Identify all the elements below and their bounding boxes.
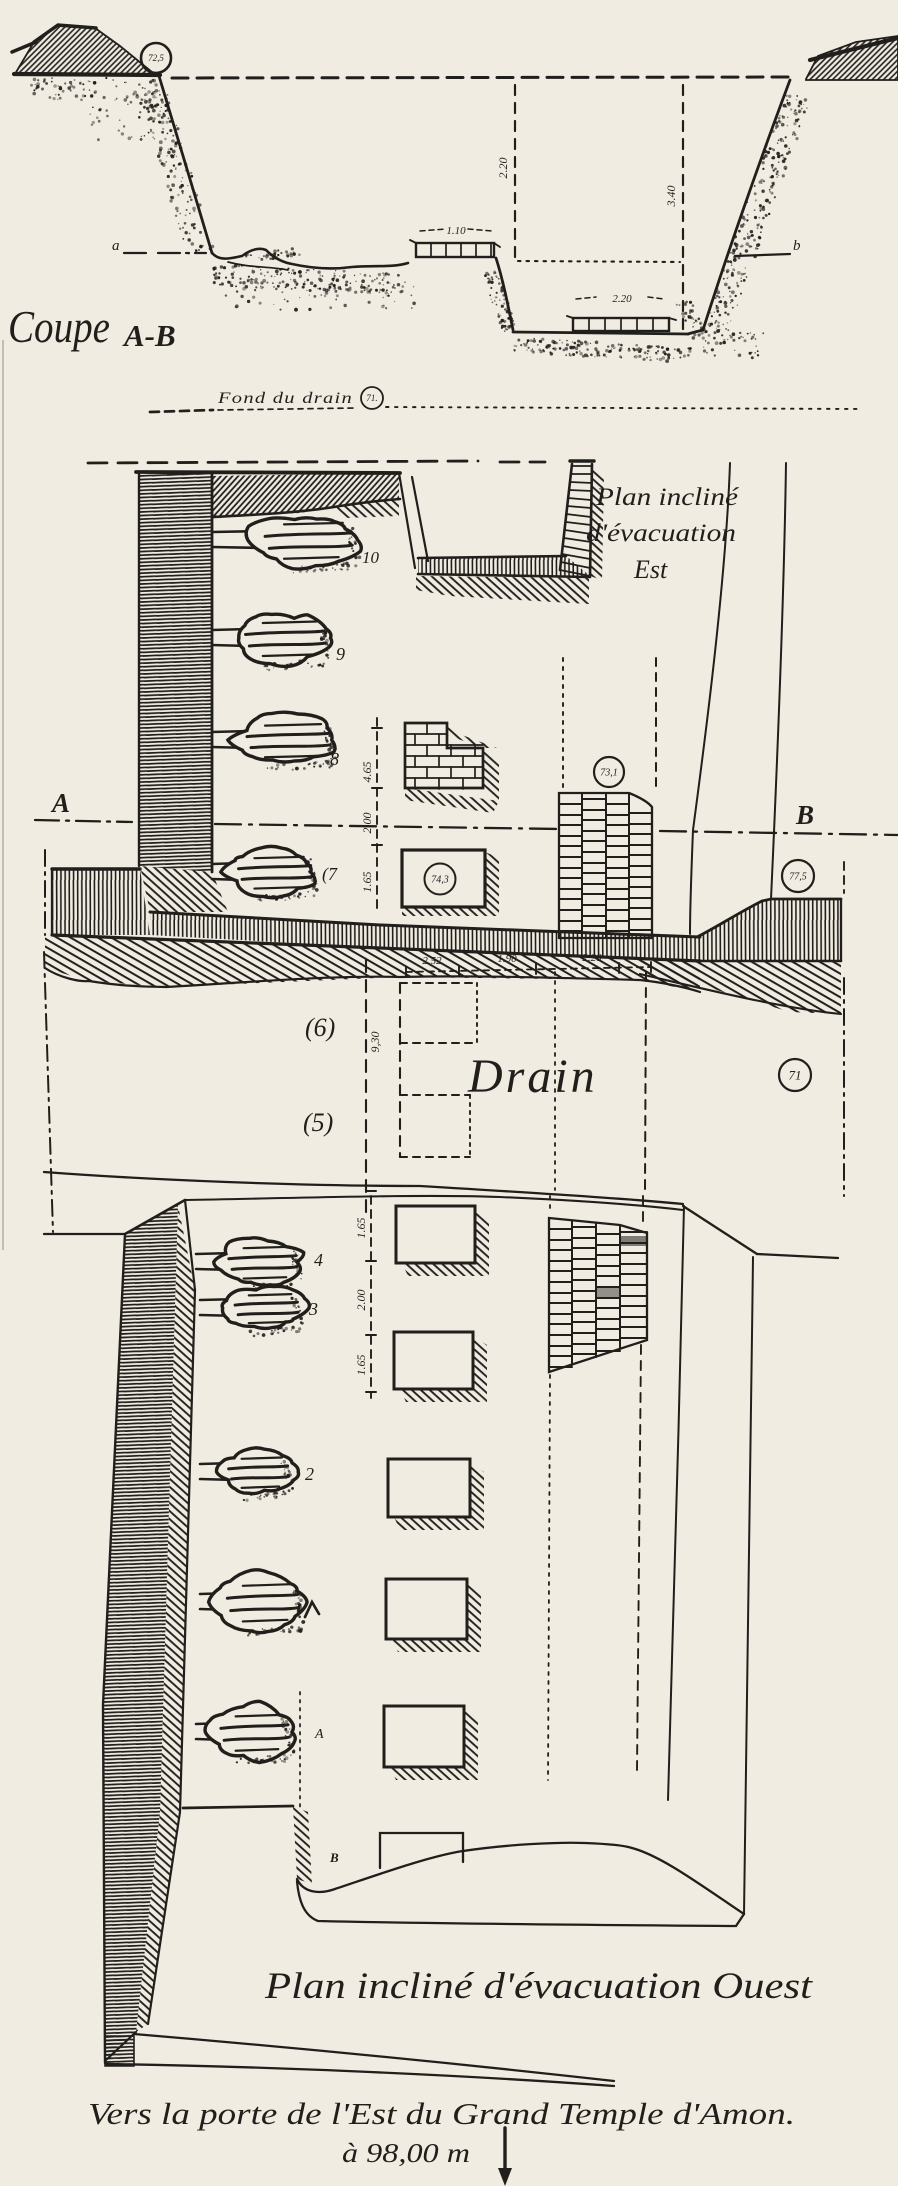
svg-text:9: 9 (336, 644, 345, 664)
svg-text:Fond du drain: Fond du drain (217, 390, 353, 407)
svg-text:b: b (793, 238, 801, 254)
svg-text:1.90: 1.90 (497, 953, 517, 965)
svg-text:d'évacuation: d'évacuation (586, 520, 736, 547)
svg-text:Coupe: Coupe (8, 302, 110, 352)
svg-text:Drain: Drain (467, 1050, 598, 1103)
svg-text:(7: (7 (322, 864, 338, 885)
svg-text:2.00: 2.00 (360, 813, 374, 834)
svg-text:(5): (5) (303, 1108, 333, 1137)
svg-text:Plan incliné d'évacuation Oues: Plan incliné d'évacuation Ouest (264, 1966, 814, 2007)
svg-text:73,1: 73,1 (600, 767, 618, 778)
svg-text:71.: 71. (366, 393, 377, 403)
svg-text:77,5: 77,5 (789, 871, 807, 882)
svg-text:2: 2 (305, 1464, 314, 1484)
svg-text:3: 3 (308, 1299, 318, 1319)
svg-text:Plan incliné: Plan incliné (595, 484, 739, 511)
svg-text:2.20: 2.20 (582, 952, 602, 964)
svg-text:Est: Est (633, 555, 668, 584)
svg-text:1.65: 1.65 (354, 1218, 368, 1239)
svg-text:72,5: 72,5 (148, 53, 164, 63)
svg-text:1.65: 1.65 (360, 872, 374, 893)
svg-text:9,30: 9,30 (368, 1032, 382, 1053)
svg-text:4: 4 (314, 1250, 323, 1270)
svg-text:2.20: 2.20 (612, 293, 632, 305)
svg-text:2.52: 2.52 (422, 955, 442, 967)
svg-text:1.65: 1.65 (354, 1355, 368, 1376)
svg-text:Vers la porte de l'Est du Gran: Vers la porte de l'Est du Grand Temple d… (88, 2096, 795, 2131)
svg-text:3.40: 3.40 (664, 186, 678, 208)
svg-text:B: B (329, 1850, 339, 1865)
svg-text:(6): (6) (305, 1013, 335, 1042)
svg-text:1.10: 1.10 (446, 225, 466, 237)
svg-text:4.65: 4.65 (360, 762, 374, 783)
svg-text:a: a (112, 238, 120, 254)
svg-text:à 98,00 m: à 98,00 m (342, 2138, 470, 2168)
svg-text:10: 10 (362, 548, 380, 567)
svg-text:2.20: 2.20 (496, 158, 510, 179)
svg-text:A-B: A-B (122, 318, 176, 353)
svg-text:71: 71 (789, 1067, 802, 1082)
svg-text:B: B (795, 800, 814, 830)
svg-text:8: 8 (330, 749, 339, 769)
svg-text:74,3: 74,3 (431, 874, 449, 885)
svg-text:2.00: 2.00 (354, 1290, 368, 1311)
svg-text:A: A (50, 788, 70, 818)
svg-text:A: A (314, 1727, 324, 1742)
